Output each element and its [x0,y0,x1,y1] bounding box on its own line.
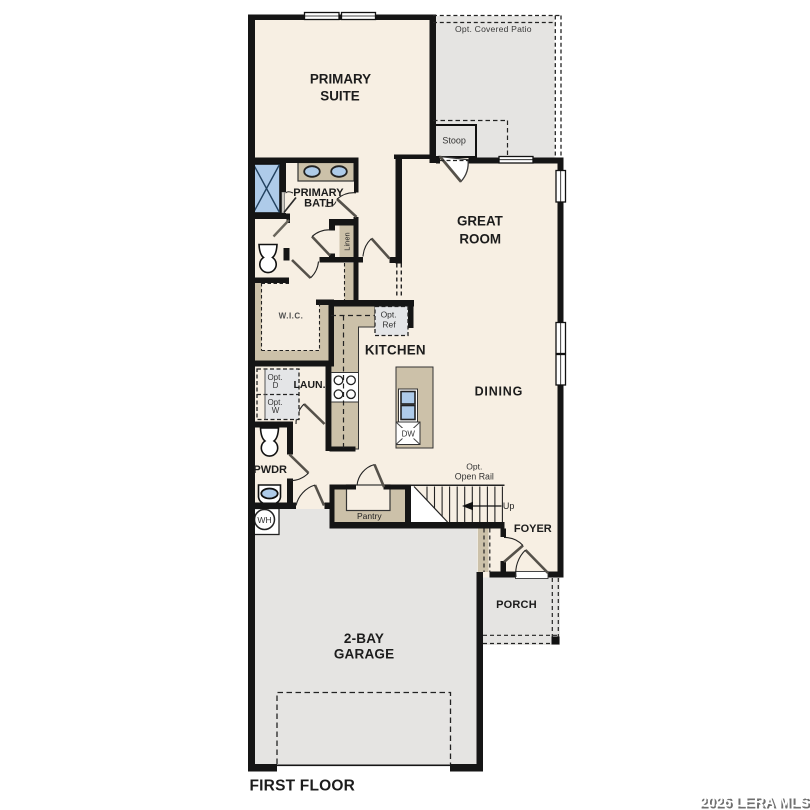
svg-text:PRIMARY: PRIMARY [310,72,371,87]
svg-text:Linen: Linen [342,232,351,250]
svg-text:Up: Up [503,501,515,511]
svg-text:W.I.C.: W.I.C. [279,312,304,321]
svg-text:Open Rail: Open Rail [455,471,494,481]
svg-text:DW: DW [402,429,416,438]
svg-text:D: D [273,381,279,390]
svg-text:FOYER: FOYER [514,523,552,535]
svg-text:W: W [272,406,280,415]
svg-text:Pantry: Pantry [357,511,382,521]
svg-text:ROOM: ROOM [459,232,501,247]
svg-text:Stoop: Stoop [442,136,466,146]
svg-text:BATH: BATH [304,198,334,210]
svg-text:Opt.: Opt. [381,310,397,320]
svg-text:WH: WH [257,515,271,525]
svg-text:PORCH: PORCH [496,599,537,611]
svg-text:FIRST FLOOR: FIRST FLOOR [250,778,356,795]
svg-text:SUITE: SUITE [320,88,360,103]
svg-text:2026 LERA MLS: 2026 LERA MLS [699,795,809,810]
svg-text:Opt.: Opt. [466,461,482,471]
svg-text:LAUN.: LAUN. [293,379,325,391]
svg-text:2-BAY: 2-BAY [344,631,384,646]
svg-text:GARAGE: GARAGE [334,647,394,662]
svg-text:DINING: DINING [475,385,524,399]
svg-text:KITCHEN: KITCHEN [365,342,426,357]
svg-text:PWDR: PWDR [253,464,287,476]
svg-text:Ref: Ref [382,320,396,330]
svg-text:GREAT: GREAT [457,214,504,229]
svg-text:Opt. Covered Patio: Opt. Covered Patio [455,24,532,34]
